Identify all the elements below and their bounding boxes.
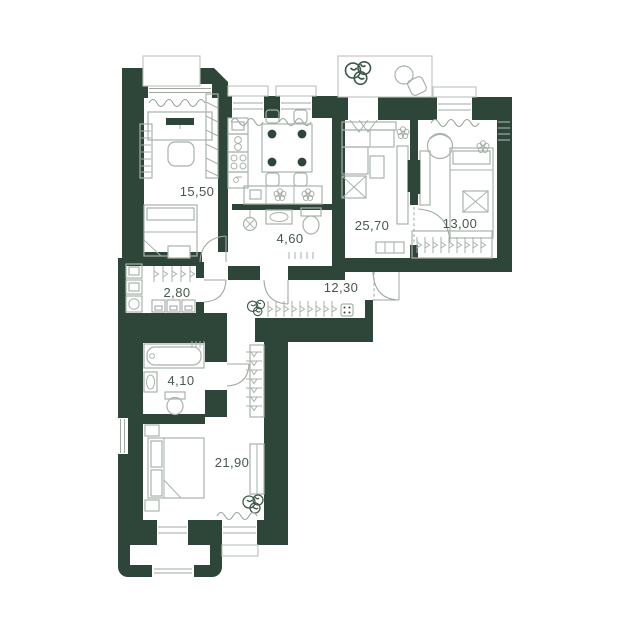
tv-icon	[418, 160, 420, 194]
stove-icon	[228, 152, 248, 172]
entry-door	[373, 272, 397, 300]
french-balcony-railing	[222, 545, 258, 556]
room-bedroom-bottom: 21,90	[145, 345, 264, 520]
room-dressing-laundry: 2,80	[126, 264, 226, 312]
pouf-icon	[341, 304, 353, 316]
entry-boundary-line	[373, 272, 399, 300]
desk-icon	[148, 112, 212, 140]
flower-icon	[397, 127, 409, 139]
window-left-wall	[118, 418, 128, 454]
kitchen-counter-icon	[228, 118, 248, 188]
toilet-icon	[165, 392, 185, 415]
window-bedroom-top-right	[437, 97, 472, 120]
room-bathroom-top: 4,60	[244, 208, 322, 304]
room-area-label: 13,00	[443, 216, 478, 231]
shower-icon	[244, 210, 257, 231]
bed-icon	[148, 438, 204, 498]
shelves-icon	[126, 264, 142, 294]
room-bedroom-top-left: 15,50	[140, 94, 226, 262]
door-bathroom-bottom	[227, 364, 249, 386]
door-opening-dressing	[196, 278, 204, 302]
floor-plan-canvas: 15,50	[0, 0, 636, 636]
wardrobe-icon	[412, 231, 492, 258]
kitchen-zone	[228, 110, 322, 204]
laundry-counter-icon	[244, 186, 322, 204]
plant-icon	[248, 300, 265, 315]
shoe-cabinet-icon	[152, 300, 195, 312]
bench-icon	[168, 246, 190, 258]
door-dressing	[204, 280, 226, 302]
balcony-door-bedroom-bottom	[157, 520, 188, 545]
room-bathroom-bottom: 4,10	[144, 341, 249, 415]
hanger-rail-icon	[154, 266, 195, 282]
room-area-label: 2,80	[164, 285, 191, 300]
tv-console-icon	[397, 146, 408, 224]
sink-icon	[144, 372, 157, 392]
room-area-label: 12,30	[324, 280, 359, 295]
balcony-door-living	[348, 97, 378, 132]
door-opening-bathroom-top	[260, 266, 288, 280]
bathtub-icon	[144, 341, 204, 368]
room-area-label: 4,60	[277, 231, 304, 246]
desk-chair-icon	[168, 142, 194, 166]
room-kitchen-living: 25,70	[342, 122, 410, 253]
towel-rail-icon	[289, 252, 313, 259]
window-bedroom-bottom	[222, 520, 257, 545]
curtain-icon	[217, 513, 257, 520]
nightstand-icon	[145, 425, 159, 436]
door-bathroom-top	[264, 280, 288, 304]
toilet-icon	[301, 208, 321, 234]
washing-machine-icon	[126, 296, 142, 312]
curtain-icon	[149, 100, 205, 107]
window-kitchen-1	[232, 96, 264, 118]
washer-icon	[274, 189, 286, 201]
sink-icon	[266, 210, 292, 224]
tv-icon	[408, 160, 410, 192]
window-sill	[228, 86, 268, 96]
balconies	[143, 56, 476, 556]
sideboard-icon	[376, 242, 404, 253]
chair-icon	[266, 173, 279, 186]
plant-icon	[243, 495, 263, 513]
window-sill	[433, 87, 476, 97]
curtain-icon	[431, 120, 479, 127]
floor-plan: 15,50	[0, 0, 636, 636]
balcony-top-left	[143, 56, 200, 86]
corridor-wardrobe-icon	[246, 345, 264, 417]
coffee-table-icon	[370, 156, 384, 178]
nightstand-icon	[145, 500, 159, 511]
armchair-icon	[428, 134, 453, 159]
room-area-label: 15,50	[180, 184, 215, 199]
dryer-icon	[302, 189, 314, 201]
door-opening-bathroom-bottom	[205, 362, 227, 390]
chair-icon	[294, 173, 307, 186]
side-table-icon	[342, 176, 366, 198]
room-area-label: 21,90	[215, 455, 250, 470]
room-area-label: 25,70	[355, 218, 390, 233]
wardrobe-icon	[250, 444, 264, 494]
sofa-icon	[342, 122, 396, 174]
room-bedroom-top-right: 13,00	[412, 120, 493, 259]
room-area-label: 4,10	[168, 373, 195, 388]
window-sill	[276, 86, 316, 96]
tv-console-icon	[420, 151, 430, 205]
hallway-wardrobe-icon	[268, 301, 337, 317]
